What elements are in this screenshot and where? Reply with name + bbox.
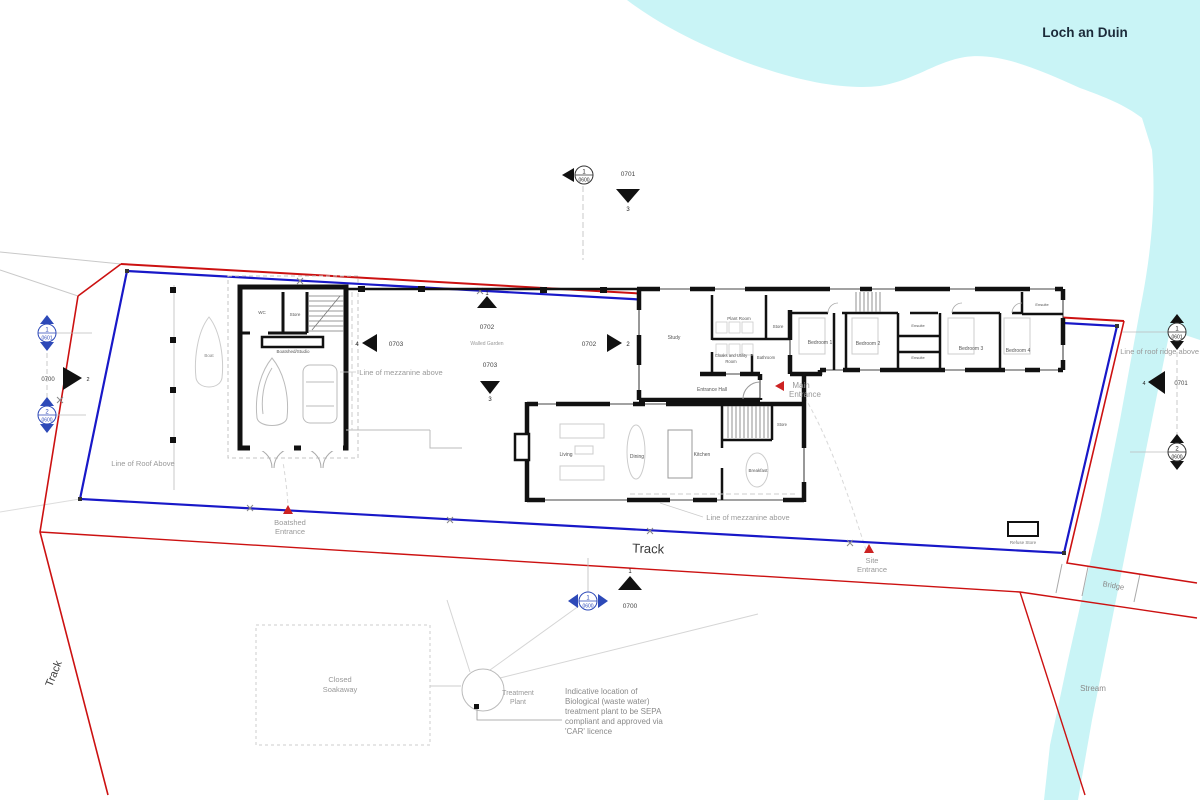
garden-left-num: 4 — [355, 342, 359, 348]
dining-label: Dining — [630, 454, 644, 460]
elevation-arrow-down-icon — [616, 189, 640, 203]
mezzanine-lower-leader — [660, 503, 703, 517]
plant-point — [474, 704, 479, 709]
bridge-abutment-3 — [1134, 574, 1140, 602]
bottom-elev-num: 1 — [628, 569, 632, 575]
mezzanine-upper-label: Line of mezzanine above — [359, 368, 442, 377]
soakaway-label-2: Soakaway — [323, 685, 358, 694]
boatshed-bench — [262, 337, 323, 347]
walled-garden-label: Walled Garden — [470, 341, 503, 347]
elevation-arrow-left-icon — [362, 334, 377, 352]
boatshed-store-label: Store — [290, 312, 301, 317]
svg-text:'CAR' licence: 'CAR' licence — [565, 727, 613, 736]
bedroom3-label: Bedroom 3 — [959, 346, 984, 352]
ensuite-b-label: Ensuite — [911, 355, 925, 360]
plant-feed-line-1 — [490, 603, 583, 670]
stream-label: Stream — [1080, 684, 1106, 693]
section-arrow-right-icon — [598, 594, 608, 608]
elevation-arrow-right-icon — [63, 367, 82, 390]
track-label: Track — [632, 540, 665, 556]
left-section1-sheet: 0601 — [41, 336, 52, 342]
boatshed-building: Boat WC Store Boatshed/Studio — [170, 276, 358, 490]
cloaks-label-2: Room — [725, 359, 737, 364]
entrance-hall-label: Entrance Hall — [697, 387, 727, 393]
garden-right-sheet: 0702 — [582, 341, 597, 348]
ensuite-a-label: Ensuite — [911, 323, 925, 328]
elevation-arrow-up-icon — [477, 296, 497, 308]
section-arrow-left-icon — [568, 594, 578, 608]
right-elev-num: 4 — [1142, 381, 1145, 387]
plant-feed-line-3 — [447, 600, 470, 672]
garden-markers: 1 0702 Walled Garden 0703 3 4 0703 0702 … — [355, 291, 630, 403]
mezzanine-lower-label: Line of mezzanine above — [706, 513, 789, 522]
right-section1-sheet: 0601 — [1171, 335, 1182, 341]
bridge-abutment-1 — [1056, 564, 1062, 593]
breakfast-label: Breakfast — [748, 468, 768, 473]
bathroom-label: Bathroom — [757, 355, 776, 360]
section-arrow-up-icon — [1170, 434, 1184, 443]
track-south-edge-west — [0, 499, 80, 512]
kitchen-label: Kitchen — [694, 452, 711, 458]
treatment-note: Indicative location of Biological (waste… — [565, 687, 663, 736]
treatment-plant-circle — [462, 669, 504, 711]
bedroom1-label: Bedroom 1 — [808, 340, 833, 346]
site-plan-page: Boat WC Store Boatshed/Studio — [0, 0, 1200, 800]
living-label: Living — [559, 452, 572, 458]
driveway-site-entrance — [805, 398, 866, 550]
left-elev-num: 2 — [86, 377, 89, 383]
boatshed-entrance-label-2: Entrance — [275, 527, 305, 536]
study-label: Study — [668, 335, 681, 341]
main-entrance-label-1: Main — [792, 381, 809, 390]
boatshed-entrance-label-1: Boatshed — [274, 518, 306, 527]
right-section2-sheet: 0600 — [1171, 455, 1182, 461]
boatshed-wc-label: WC — [258, 310, 266, 315]
bottom-elev-sheet: 0700 — [623, 603, 638, 610]
section-arrow-down-icon — [40, 424, 54, 433]
treatment-label-1: Treatment — [502, 690, 534, 697]
garden-down-sheet: 0703 — [483, 362, 498, 369]
top-elev-sheet: 0701 — [621, 171, 636, 178]
garden-left-sheet: 0703 — [389, 341, 404, 348]
plant-room-label: Plant Room — [727, 316, 751, 321]
left-markers: 1 0601 0700 2 2 0600 — [38, 315, 92, 433]
elevation-arrow-down-icon — [480, 381, 500, 394]
plant-feed-line-2 — [500, 614, 758, 678]
top-section-sheet: 0600 — [578, 178, 589, 184]
main-house-north-wing: Study Plant Room Store Cloaks and Utilit… — [637, 289, 1063, 400]
site-entrance-label-2: Entrance — [857, 565, 887, 574]
bottom-section-sheet: 0600 — [582, 604, 593, 610]
site-plan-drawing: Boat WC Store Boatshed/Studio — [0, 0, 1200, 800]
soakaway-label-1: Closed — [328, 675, 351, 684]
field-line-topleft-b — [0, 270, 78, 296]
cloaks-label-1: Cloaks and Utility — [715, 353, 748, 358]
roof-above-label: Line of Roof Above — [111, 459, 174, 468]
bottom-markers: 1 0700 1 0600 — [568, 558, 642, 610]
top-section-marker: 1 0600 0701 3 — [562, 166, 640, 260]
left-section2-sheet: 0600 — [41, 418, 52, 424]
section-arrow-up-icon — [40, 397, 54, 406]
svg-text:Biological (waste water): Biological (waste water) — [565, 697, 650, 706]
garden-down-num: 3 — [488, 397, 492, 403]
loch-label: Loch an Duin — [1042, 25, 1128, 40]
boatshed-studio-label: Boatshed/Studio — [276, 349, 310, 354]
field-line-topleft-a — [0, 252, 121, 264]
refuse-store: Refuse Store — [1008, 522, 1038, 545]
bedroom4-label: Bedroom 4 — [1006, 348, 1031, 354]
elevation-arrow-up-icon — [618, 576, 642, 590]
section-arrow-down-icon — [40, 342, 54, 351]
bedroom2-label: Bedroom 2 — [856, 341, 881, 347]
left-elev-sheet: 0700 — [41, 377, 55, 383]
elevation-arrow-right-icon — [607, 334, 622, 352]
drainage-group: Closed Soakaway Treatment Plant Indicati… — [256, 600, 758, 745]
roof-ridge-label: Line of roof ridge above — [1120, 347, 1199, 356]
section-arrow-up-icon — [40, 315, 54, 324]
path-boatshed-entrance — [283, 462, 288, 510]
main-entrance-label-2: Entrance — [789, 390, 822, 399]
svg-text:Indicative location of: Indicative location of — [565, 687, 638, 696]
boat-outside — [195, 317, 222, 387]
section-arrow-down-icon — [1170, 461, 1184, 470]
note-leader-line — [477, 709, 562, 720]
track-left-label: Track — [44, 659, 65, 689]
boat-label: Boat — [204, 353, 214, 358]
site-entrance-label-1: Site — [866, 556, 879, 565]
garden-up-sheet: 0702 — [480, 324, 495, 331]
garden-right-num: 2 — [626, 342, 630, 348]
top-elev-num: 3 — [626, 207, 630, 213]
refuse-store-label: Refuse Store — [1010, 540, 1037, 545]
store-b-label: Store — [777, 422, 788, 427]
svg-text:treatment plant to be SEPA: treatment plant to be SEPA — [565, 707, 662, 716]
ensuite-c-label: Ensuite — [1035, 302, 1049, 307]
section-arrow-left-icon — [562, 168, 574, 182]
house-stair-treads — [856, 292, 880, 312]
svg-text:compliant and approved via: compliant and approved via — [565, 717, 663, 726]
treatment-label-2: Plant — [510, 699, 526, 706]
store-a-label: Store — [773, 324, 784, 329]
right-elev-sheet: 0701 — [1174, 381, 1188, 387]
west-bay — [515, 434, 529, 460]
